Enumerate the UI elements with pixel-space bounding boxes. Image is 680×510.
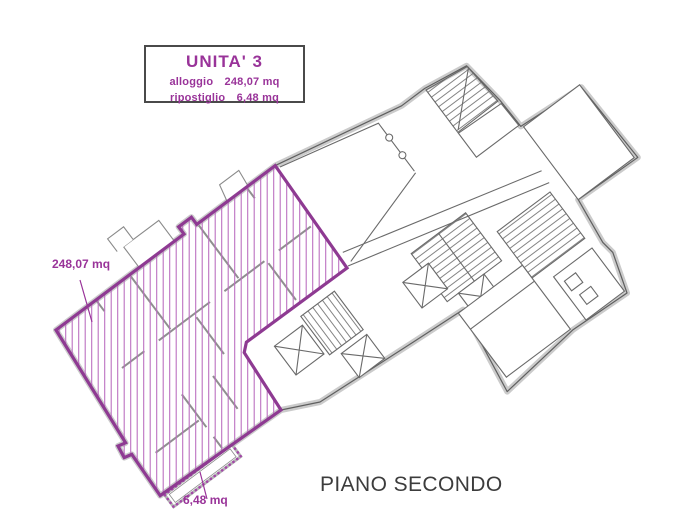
floor-plan-drawing [0,0,680,510]
plan-rotated-frame [13,0,680,510]
storage-area-label: 6,48 mq [183,493,228,507]
main-area-label: 248,07 mq [52,257,110,271]
legend-box: UNITA' 3 alloggio 248,07 mq ripostiglio … [144,45,305,103]
legend-row-ripostiglio: ripostiglio 6,48 mq [146,92,303,104]
floor-plan-page: UNITA' 3 alloggio 248,07 mq ripostiglio … [0,0,680,510]
legend-title: UNITA' 3 [146,52,303,72]
floor-caption: PIANO SECONDO [320,473,503,497]
legend-row-alloggio: alloggio 248,07 mq [146,76,303,88]
